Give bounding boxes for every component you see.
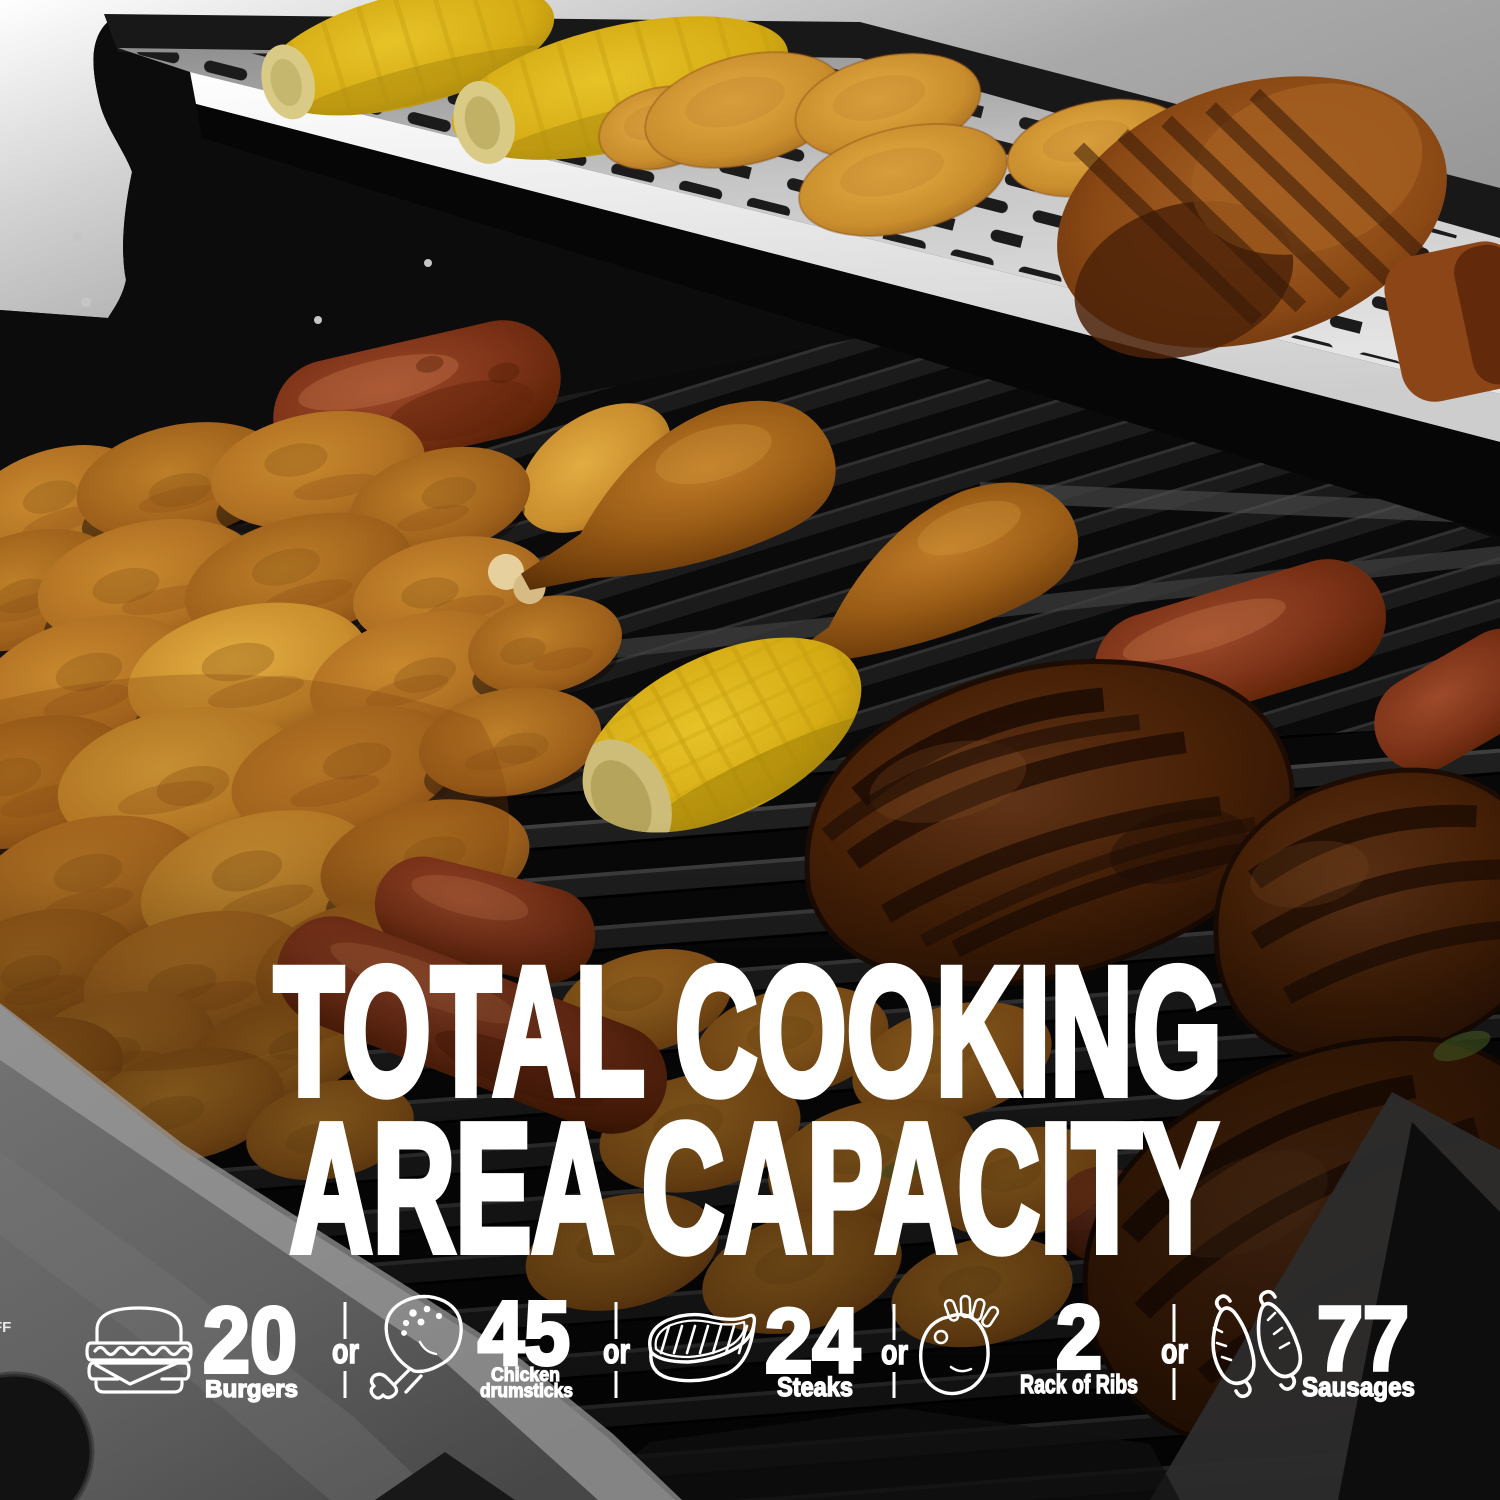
- svg-text:AREA CAPACITY: AREA CAPACITY: [290, 1085, 1218, 1290]
- svg-text:Sausages: Sausages: [1302, 1372, 1415, 1402]
- svg-text:drumsticks: drumsticks: [480, 1381, 573, 1402]
- svg-text:Rack of Ribs: Rack of Ribs: [1020, 1369, 1138, 1399]
- svg-text:Steaks: Steaks: [777, 1372, 853, 1402]
- svg-text:or: or: [603, 1332, 630, 1371]
- svg-text:or: or: [1161, 1332, 1188, 1371]
- svg-text:Burgers: Burgers: [205, 1376, 298, 1403]
- svg-text:FF: FF: [0, 1319, 11, 1336]
- svg-text:or: or: [332, 1332, 359, 1371]
- svg-text:or: or: [881, 1333, 908, 1372]
